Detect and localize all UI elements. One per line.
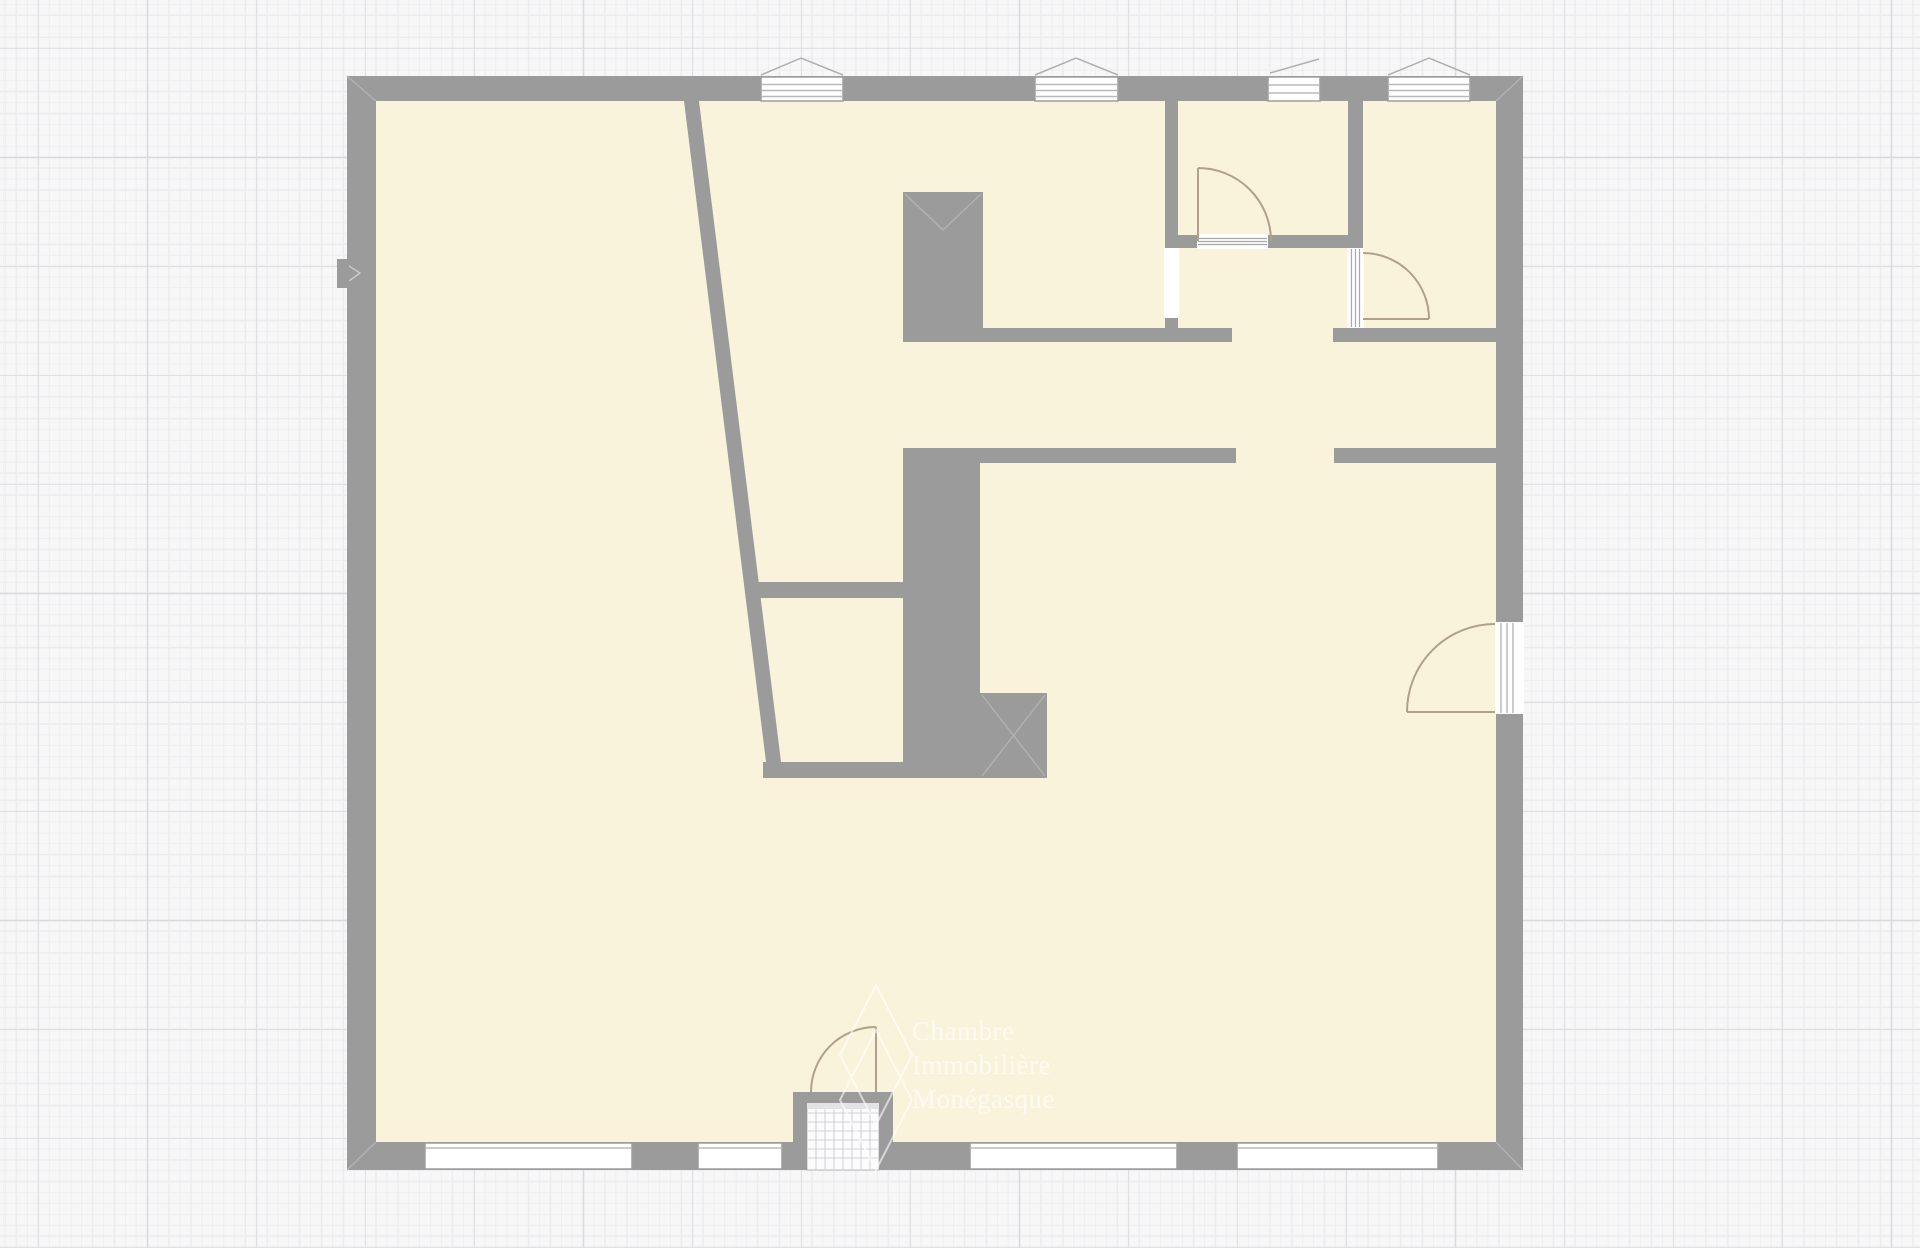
exterior-wall-top[interactable] xyxy=(347,76,1523,101)
window-bottom-2[interactable] xyxy=(698,1143,782,1169)
window-bottom-4[interactable] xyxy=(1237,1143,1438,1169)
mid-wall-lower-right[interactable] xyxy=(1334,448,1496,463)
mid-wall-upper-left[interactable] xyxy=(983,328,1232,342)
awning-icon xyxy=(1388,58,1470,75)
closet-wall-top[interactable] xyxy=(750,582,903,598)
awning-icon xyxy=(1270,59,1319,73)
window-top-4[interactable] xyxy=(1388,58,1470,101)
watermark-line-2: Immobilière xyxy=(912,1050,1051,1080)
window-top-1[interactable] xyxy=(761,58,843,101)
window-top-3[interactable] xyxy=(1268,59,1320,101)
closet-wall-bottom[interactable] xyxy=(763,762,903,778)
pillar-wall[interactable] xyxy=(903,192,983,342)
awning-icon xyxy=(761,58,843,75)
watermark-line-1: Chambre xyxy=(912,1016,1014,1046)
window-bottom-3[interactable] xyxy=(970,1143,1177,1169)
exterior-wall-left[interactable] xyxy=(347,76,376,1170)
stem-wall[interactable] xyxy=(903,448,980,778)
mid-wall-upper-right[interactable] xyxy=(1333,328,1496,342)
window-top-2[interactable] xyxy=(1035,58,1118,101)
watermark-line-3: Monégasque xyxy=(912,1084,1055,1114)
hallway-opening[interactable] xyxy=(1164,248,1179,318)
awning-icon xyxy=(1035,58,1118,75)
floor-plan[interactable]: Chambre Immobilière Monégasque xyxy=(0,0,1920,1248)
left-wall-connector[interactable] xyxy=(337,259,376,288)
window-bottom-1[interactable] xyxy=(425,1143,632,1169)
grid-canvas[interactable]: Chambre Immobilière Monégasque xyxy=(0,0,1920,1248)
entrance-jamb-left xyxy=(793,1092,807,1170)
